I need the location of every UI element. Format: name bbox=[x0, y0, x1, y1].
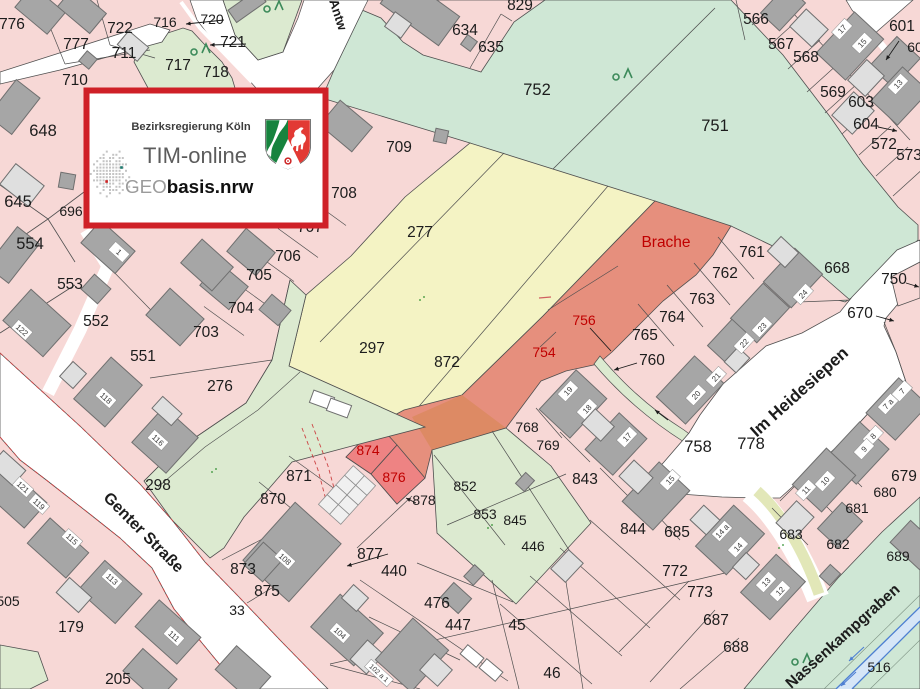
svg-text:760: 760 bbox=[639, 352, 665, 369]
svg-text:689: 689 bbox=[886, 548, 910, 564]
svg-text:829: 829 bbox=[507, 0, 533, 14]
svg-text:709: 709 bbox=[386, 139, 412, 156]
svg-text:205: 205 bbox=[105, 671, 131, 688]
svg-text:46: 46 bbox=[543, 665, 560, 682]
svg-text:440: 440 bbox=[381, 563, 407, 580]
svg-text:45: 45 bbox=[508, 617, 525, 634]
svg-text:844: 844 bbox=[620, 521, 646, 538]
svg-text:688: 688 bbox=[723, 639, 749, 656]
svg-text:853: 853 bbox=[473, 506, 497, 522]
svg-text:683: 683 bbox=[779, 526, 803, 542]
svg-text:752: 752 bbox=[523, 81, 551, 99]
svg-text:568: 568 bbox=[793, 49, 819, 66]
svg-text:763: 763 bbox=[689, 291, 715, 308]
svg-text:298: 298 bbox=[145, 477, 171, 494]
svg-text:604: 604 bbox=[853, 116, 879, 133]
svg-text:717: 717 bbox=[165, 57, 191, 74]
svg-text:754: 754 bbox=[532, 344, 556, 360]
svg-text:552: 552 bbox=[83, 313, 109, 330]
svg-text:875: 875 bbox=[254, 583, 280, 600]
svg-text:772: 772 bbox=[662, 563, 688, 580]
svg-text:722: 722 bbox=[107, 20, 133, 37]
svg-text:648: 648 bbox=[29, 122, 57, 140]
svg-text:GEObasis.nrw: GEObasis.nrw bbox=[125, 176, 254, 197]
svg-text:756: 756 bbox=[572, 312, 596, 328]
svg-text:874: 874 bbox=[356, 442, 380, 458]
svg-text:567: 567 bbox=[768, 36, 794, 53]
svg-text:769: 769 bbox=[536, 437, 560, 453]
svg-text:681: 681 bbox=[845, 500, 869, 516]
svg-text:446: 446 bbox=[521, 538, 545, 554]
svg-text:762: 762 bbox=[712, 265, 738, 282]
svg-text:720: 720 bbox=[200, 11, 224, 27]
svg-text:551: 551 bbox=[130, 348, 156, 365]
svg-text:758: 758 bbox=[684, 438, 712, 456]
svg-text:679: 679 bbox=[891, 468, 917, 485]
svg-text:706: 706 bbox=[275, 248, 301, 265]
svg-text:277: 277 bbox=[407, 224, 433, 241]
svg-text:634: 634 bbox=[452, 22, 478, 39]
svg-text:873: 873 bbox=[230, 561, 256, 578]
svg-text:60: 60 bbox=[907, 39, 920, 55]
svg-text:603: 603 bbox=[848, 94, 874, 111]
svg-text:554: 554 bbox=[16, 235, 44, 253]
svg-text:505: 505 bbox=[0, 593, 20, 609]
svg-text:878: 878 bbox=[412, 492, 436, 508]
svg-text:718: 718 bbox=[203, 64, 229, 81]
svg-text:668: 668 bbox=[824, 260, 850, 277]
svg-text:Bezirksregierung Köln: Bezirksregierung Köln bbox=[131, 121, 251, 133]
svg-text:761: 761 bbox=[739, 244, 765, 261]
svg-text:716: 716 bbox=[153, 14, 177, 30]
svg-text:870: 870 bbox=[260, 491, 286, 508]
svg-text:777: 777 bbox=[63, 36, 89, 53]
svg-text:566: 566 bbox=[743, 11, 769, 28]
svg-text:680: 680 bbox=[873, 484, 897, 500]
svg-text:871: 871 bbox=[286, 468, 312, 485]
svg-text:711: 711 bbox=[112, 45, 137, 62]
svg-text:696: 696 bbox=[59, 203, 83, 219]
svg-text:179: 179 bbox=[58, 619, 84, 636]
svg-text:751: 751 bbox=[701, 117, 729, 135]
svg-text:750: 750 bbox=[881, 271, 907, 288]
svg-text:670: 670 bbox=[847, 305, 873, 322]
svg-text:TIM-online: TIM-online bbox=[143, 143, 247, 168]
svg-text:687: 687 bbox=[703, 612, 729, 629]
svg-text:773: 773 bbox=[687, 584, 713, 601]
svg-text:852: 852 bbox=[453, 478, 477, 494]
svg-text:447: 447 bbox=[445, 617, 471, 634]
svg-text:765: 765 bbox=[632, 327, 658, 344]
svg-text:710: 710 bbox=[62, 72, 88, 89]
svg-text:704: 704 bbox=[228, 300, 254, 317]
svg-text:764: 764 bbox=[659, 309, 685, 326]
svg-text:635: 635 bbox=[478, 39, 504, 56]
svg-text:705: 705 bbox=[246, 267, 272, 284]
svg-text:573: 573 bbox=[896, 147, 920, 164]
svg-text:297: 297 bbox=[359, 340, 385, 357]
svg-text:682: 682 bbox=[826, 536, 850, 552]
svg-text:516: 516 bbox=[867, 659, 891, 675]
svg-text:572: 572 bbox=[871, 136, 897, 153]
svg-text:Brache: Brache bbox=[641, 234, 690, 251]
svg-text:877: 877 bbox=[357, 546, 383, 563]
svg-text:776: 776 bbox=[0, 16, 25, 33]
svg-text:276: 276 bbox=[207, 378, 233, 395]
svg-text:708: 708 bbox=[331, 185, 357, 202]
svg-text:645: 645 bbox=[4, 193, 32, 211]
svg-text:843: 843 bbox=[572, 471, 598, 488]
svg-text:845: 845 bbox=[503, 512, 527, 528]
svg-text:33: 33 bbox=[229, 602, 245, 618]
svg-text:721: 721 bbox=[220, 34, 246, 51]
svg-text:703: 703 bbox=[193, 324, 219, 341]
svg-text:553: 553 bbox=[57, 276, 83, 293]
svg-text:685: 685 bbox=[664, 524, 690, 541]
svg-text:569: 569 bbox=[820, 84, 846, 101]
svg-text:872: 872 bbox=[434, 354, 460, 371]
svg-text:768: 768 bbox=[515, 419, 539, 435]
svg-text:876: 876 bbox=[382, 469, 406, 485]
svg-text:476: 476 bbox=[424, 595, 450, 612]
svg-text:601: 601 bbox=[889, 18, 915, 35]
